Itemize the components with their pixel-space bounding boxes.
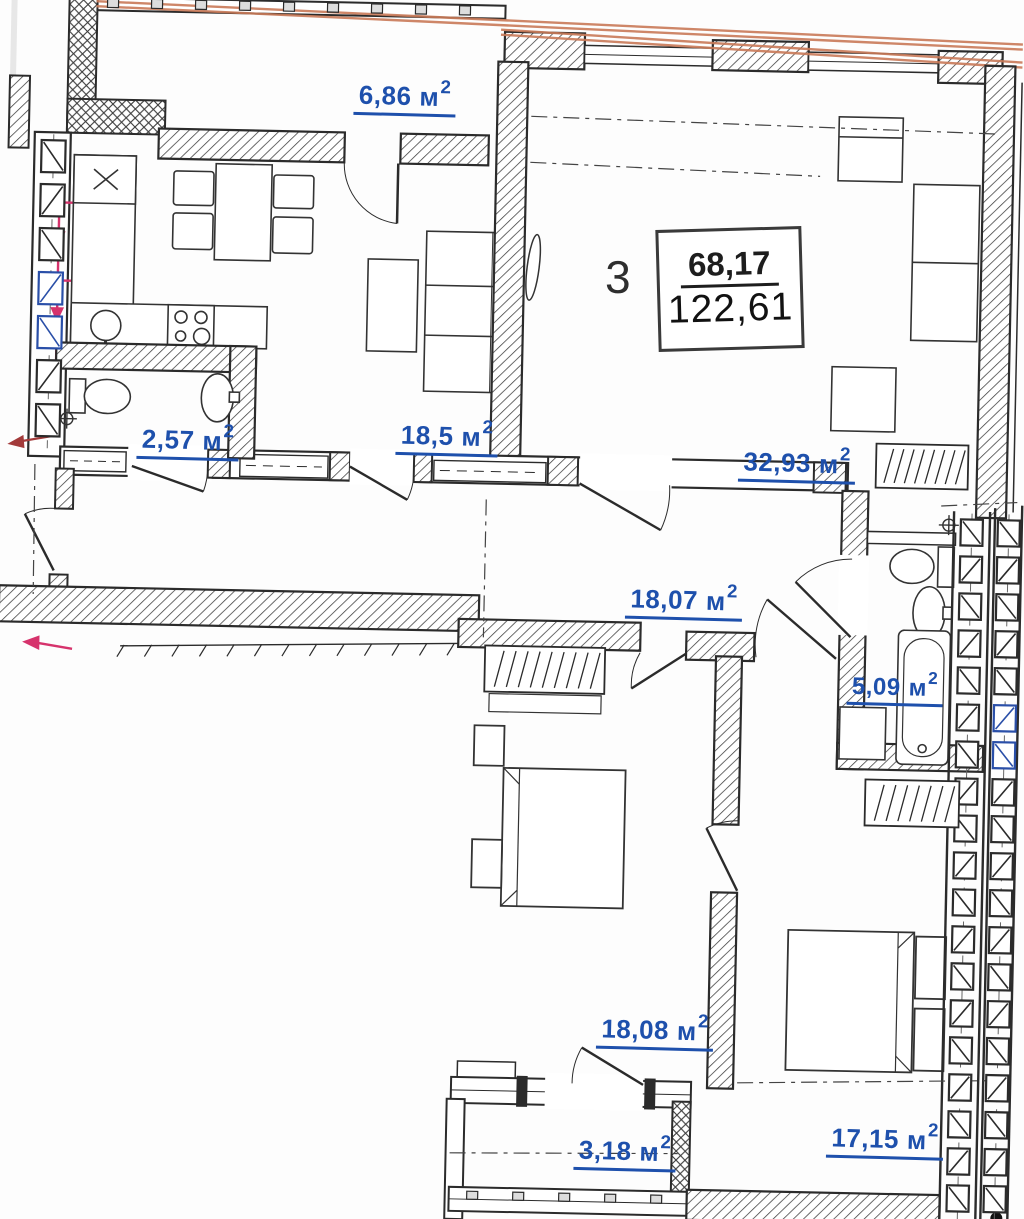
toilet [84, 379, 131, 414]
chair [272, 217, 313, 254]
bedroom1-inner-door-leaf [705, 820, 738, 891]
dining-table [214, 164, 272, 261]
floor-plan-page: 6,86м2 2,57м2 18,5м2 32,93м2 18,07м2 5,0… [0, 0, 1024, 1219]
corridor-top-wall [59, 443, 848, 534]
toilet-tank [69, 379, 86, 413]
bed [785, 930, 914, 1073]
entrance-door-swing [24, 508, 55, 571]
sofa [424, 231, 501, 393]
kitchen-sink [91, 310, 122, 341]
armchair [831, 367, 896, 432]
nightstand [913, 1009, 944, 1072]
nightstand [474, 725, 505, 766]
living-room-furniture [831, 117, 982, 434]
balcony-door-swing [343, 162, 398, 223]
bedroom1-door-swing [631, 653, 686, 690]
bedroom1-furniture [471, 693, 627, 908]
cabinet [838, 117, 903, 182]
wc-room [54, 342, 256, 458]
chair [273, 175, 314, 209]
kitchen-block [70, 155, 314, 356]
chair [172, 213, 213, 250]
toilet [890, 549, 935, 584]
bedroom2-furniture [785, 930, 946, 1073]
wardrobe-shelf [489, 694, 601, 714]
coffee-table [366, 259, 418, 352]
sofa-group [366, 230, 501, 393]
door-leaf [523, 234, 543, 301]
washing-machine [839, 707, 886, 760]
bedroom2-bottom-wall [686, 1190, 940, 1219]
nightstand [471, 839, 502, 888]
central-wall [490, 62, 547, 459]
nightstand [915, 937, 946, 1000]
corridor-bottom-wall [0, 585, 479, 653]
bedroom1-window-wall [451, 1045, 692, 1112]
chair [173, 171, 214, 206]
bedroom2-door-swing [755, 599, 837, 659]
floor-plan-svg [0, 0, 1024, 1219]
sill-cabinet [434, 460, 546, 482]
